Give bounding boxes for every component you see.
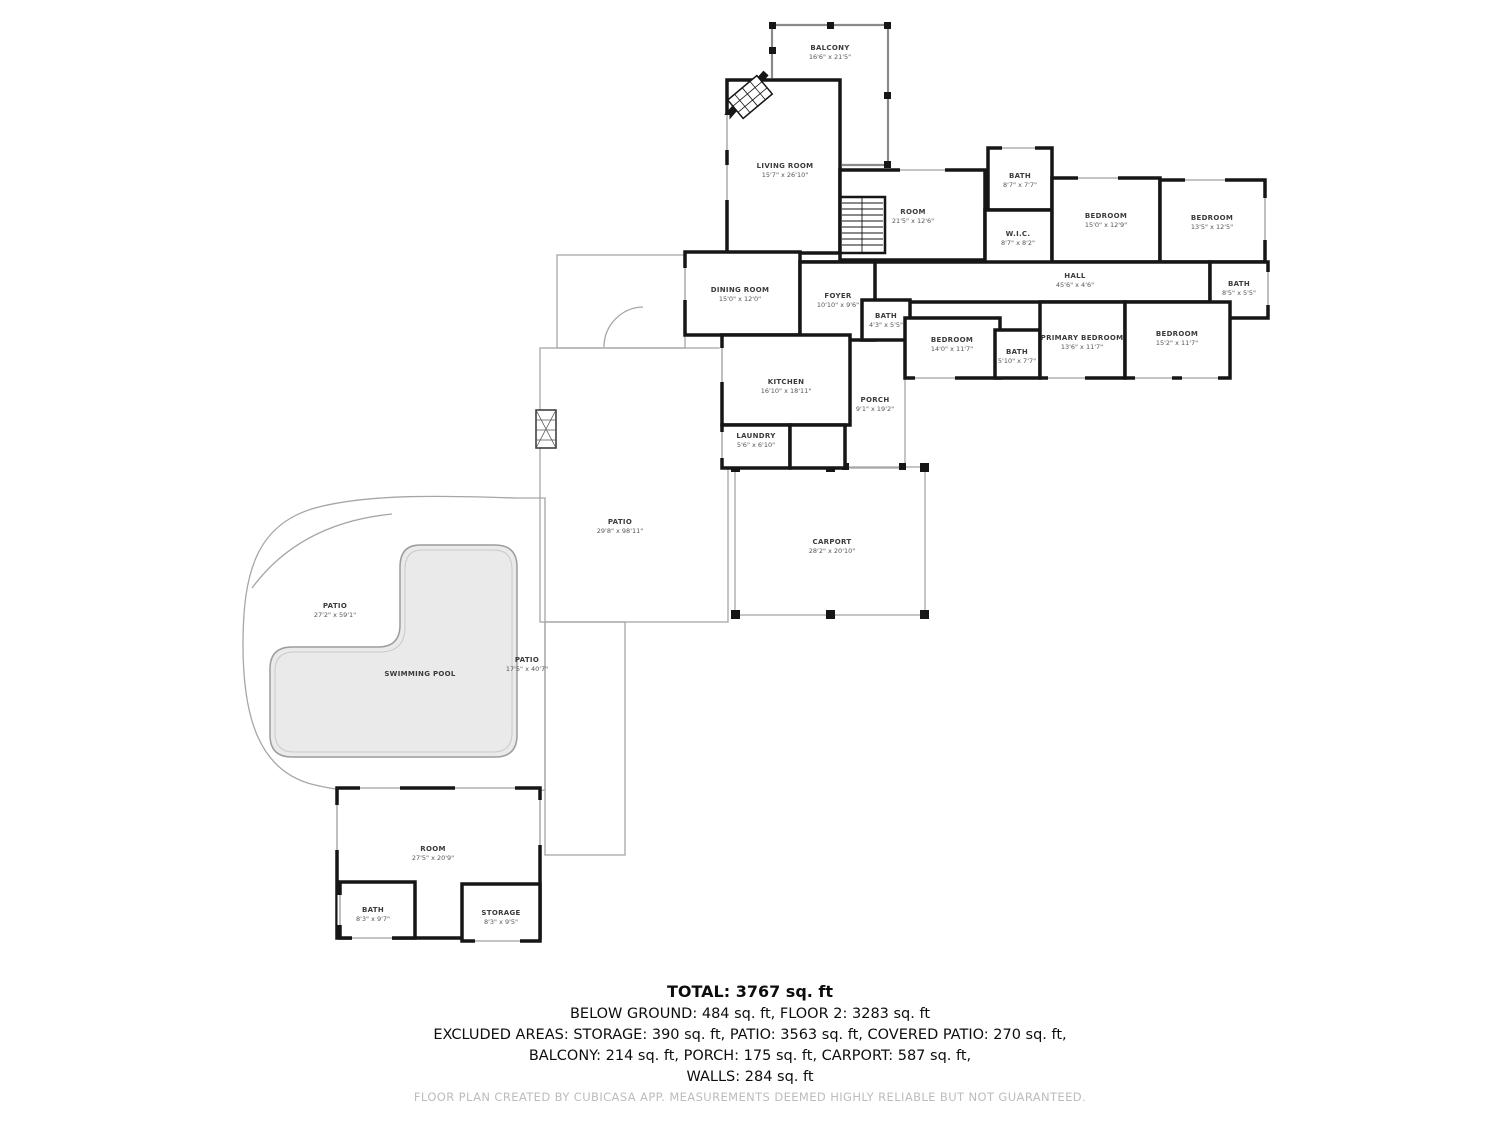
carport-outline — [731, 463, 929, 619]
wall-primary-bedroom — [1040, 302, 1125, 378]
summary-line-walls: WALLS: 284 sq. ft — [0, 1069, 1500, 1085]
upper-patio-outline — [540, 348, 728, 622]
wall-wic — [985, 210, 1052, 265]
carport-posts — [731, 463, 929, 619]
summary-line-excluded-2: BALCONY: 214 sq. ft, PORCH: 175 sq. ft, … — [0, 1048, 1500, 1064]
wall-kitchen — [722, 335, 850, 425]
summary-total: TOTAL: 3767 sq. ft — [0, 982, 1500, 1001]
swimming-pool-shape — [270, 545, 517, 757]
pool-patio-inner-curve — [252, 514, 392, 588]
wall-bedroom-4 — [1125, 302, 1230, 378]
footer-disclaimer: FLOOR PLAN CREATED BY CUBICASA APP. MEAS… — [0, 1090, 1500, 1104]
patio-corridor-outline — [545, 622, 625, 855]
wall-dining-room — [685, 252, 800, 335]
bay-outline — [557, 255, 685, 348]
walls-layer — [337, 80, 1268, 941]
wall-bath-foyer — [862, 300, 910, 340]
wall-storage — [462, 884, 540, 941]
wall-bedroom-1 — [1052, 178, 1160, 262]
wall-bath-upper — [988, 148, 1052, 210]
door-arc — [604, 307, 643, 347]
wall-bath-primary — [995, 330, 1040, 378]
wall-bedroom-3 — [905, 318, 1000, 378]
summary-line-floors: BELOW GROUND: 484 sq. ft, FLOOR 2: 3283 … — [0, 1006, 1500, 1022]
wall-laundry — [722, 425, 790, 468]
wall-bath-lower — [340, 882, 415, 938]
summary-line-excluded: EXCLUDED AREAS: STORAGE: 390 sq. ft, PAT… — [0, 1027, 1500, 1043]
equipment-icon — [536, 410, 556, 448]
floorplan-canvas: BALCONY16'6" x 21'5" LIVING ROOM15'7" x … — [0, 0, 1500, 1125]
wall-mudroom — [790, 425, 845, 468]
wall-bedroom-2 — [1160, 180, 1265, 262]
area-summary: TOTAL: 3767 sq. ft BELOW GROUND: 484 sq.… — [0, 982, 1500, 1090]
floorplan-drawing — [0, 0, 1500, 1125]
